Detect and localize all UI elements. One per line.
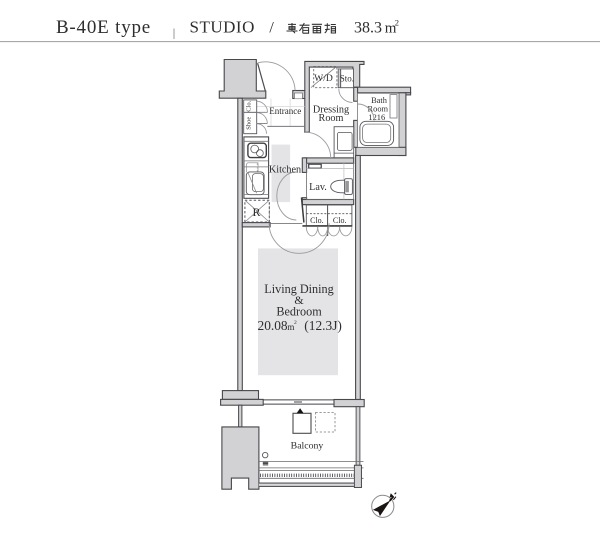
svg-text:38.3: 38.3 [354,20,382,37]
svg-text:Sto.: Sto. [340,73,354,83]
svg-text:Clo.: Clo. [245,100,252,111]
svg-text:Clo.: Clo. [333,216,347,225]
svg-text:Clo.: Clo. [310,216,324,225]
svg-text:(12.3J): (12.3J) [304,318,342,333]
svg-text:Kitchen: Kitchen [269,165,301,176]
svg-text:Room: Room [319,113,344,124]
svg-text:20.08: 20.08 [258,318,288,333]
svg-text:2: 2 [395,18,399,28]
svg-text:2: 2 [294,320,297,326]
svg-text:Entrance: Entrance [269,106,301,116]
svg-text:W/D: W/D [314,73,333,84]
svg-text:1216: 1216 [368,113,385,122]
svg-text:STUDIO: STUDIO [190,18,255,37]
svg-text:Shoe: Shoe [245,117,252,130]
svg-text:R: R [252,205,260,219]
svg-text:/: / [269,20,274,37]
svg-text:B-40E type: B-40E type [56,17,151,38]
svg-text:Lav.: Lav. [309,182,327,193]
svg-text:Balcony: Balcony [291,441,324,452]
svg-text:Bedroom: Bedroom [276,304,322,318]
